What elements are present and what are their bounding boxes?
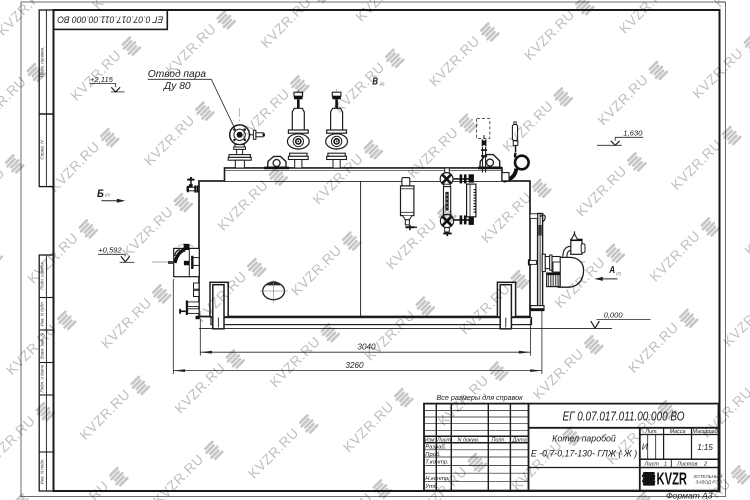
svg-text:(2): (2) xyxy=(105,192,111,197)
svg-text:KVZR: KVZR xyxy=(657,468,688,488)
svg-text:Б: Б xyxy=(97,188,104,200)
svg-text:1,630: 1,630 xyxy=(623,129,643,138)
svg-text:Проб.: Проб. xyxy=(425,452,441,458)
svg-text:(2): (2) xyxy=(380,81,386,86)
svg-text:0,000: 0,000 xyxy=(604,311,624,320)
svg-text:Разраб.: Разраб. xyxy=(425,445,446,451)
svg-text:1: 1 xyxy=(664,462,667,468)
svg-text:Инв. N подл.: Инв. N подл. xyxy=(39,459,44,485)
svg-text:ЕГ 0.07.017.011.00.000 ВО: ЕГ 0.07.017.011.00.000 ВО xyxy=(57,15,163,25)
svg-text:Т.контр.: Т.контр. xyxy=(425,460,448,466)
svg-text:Справ. N: Справ. N xyxy=(39,140,44,160)
svg-text:(2): (2) xyxy=(616,270,622,275)
svg-text:N докум.: N докум. xyxy=(458,437,480,443)
svg-text:1:15: 1:15 xyxy=(697,443,713,452)
svg-text:Инв. N дубл.: Инв. N дубл. xyxy=(39,301,44,326)
svg-text:Ду 80: Ду 80 xyxy=(163,81,191,92)
svg-text:Масса: Масса xyxy=(670,429,686,435)
svg-text:Листов: Листов xyxy=(676,462,697,468)
svg-text:Изм: Изм xyxy=(425,437,435,443)
svg-text:А: А xyxy=(608,264,615,276)
svg-text:Лист: Лист xyxy=(436,437,451,443)
svg-text:Подп.: Подп. xyxy=(492,437,506,443)
svg-text:И: И xyxy=(642,442,649,452)
svg-text:Котел паробой: Котел паробой xyxy=(552,434,616,444)
svg-text:КОТЕЛЬНЫЙ: КОТЕЛЬНЫЙ xyxy=(694,472,724,479)
svg-text:3260: 3260 xyxy=(345,361,364,370)
svg-text:Дата: Дата xyxy=(512,437,527,443)
svg-text:Подп. и дата: Подп. и дата xyxy=(39,364,44,392)
svg-text:Лист: Лист xyxy=(644,462,660,468)
